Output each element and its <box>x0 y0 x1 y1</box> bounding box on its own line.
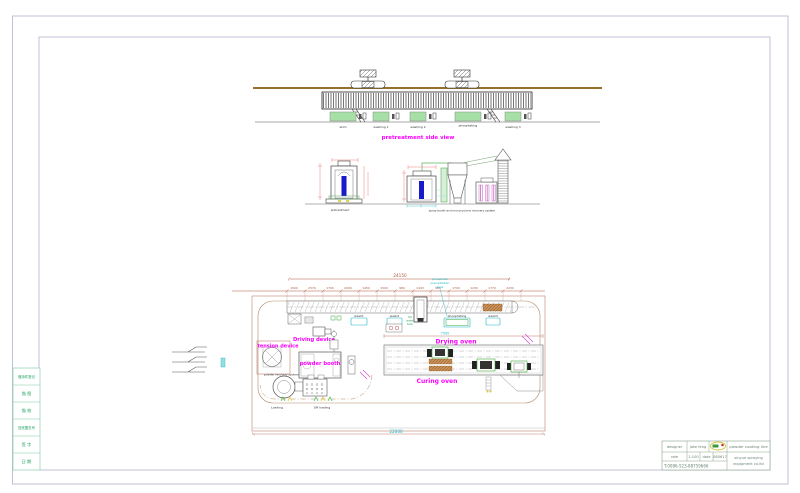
hoist-trolley <box>445 70 479 88</box>
tank-label-washing2: washing 2 <box>410 125 425 129</box>
designer-value: jake feng <box>689 445 707 449</box>
dim-value: 980 <box>399 286 405 290</box>
scale-label: rate <box>671 455 679 459</box>
note-line: hot <box>408 315 412 319</box>
hot-water-tank-note: hot water tank <box>406 315 414 326</box>
dim-value: 1500 <box>290 286 298 290</box>
magenta-diagonal-dim <box>360 370 370 379</box>
note-line: water <box>406 319 414 323</box>
cyan-marker <box>221 358 225 367</box>
powder-recovery-system <box>273 375 327 398</box>
drawing-sheet: 借用件登记 描 图 描 校 旧底图总号 签 字 日 期 designer jak… <box>0 0 800 493</box>
plan-tank-label: wash1 <box>354 314 364 318</box>
tank-washing3 <box>505 112 531 121</box>
workpiece-blue-bar <box>419 181 424 199</box>
plan-tank-wash3 <box>486 318 500 325</box>
tank-washing2 <box>410 112 436 121</box>
dim-value: 2000 <box>344 286 352 290</box>
burner-unit <box>507 361 531 378</box>
plan-tank-label: wash3 <box>488 314 498 318</box>
pretreatment-section-caption: pretreatment <box>331 208 351 212</box>
yellow-marker <box>346 200 349 202</box>
tank-label-phosphating: phosphating <box>459 124 478 128</box>
cyclone-cone <box>448 175 467 198</box>
flow-arrow-icon <box>172 357 207 362</box>
left-revision-table: 借用件登记 描 图 描 校 旧底图总号 签 字 日 期 <box>13 368 40 470</box>
plan-spray-chamber <box>414 297 427 322</box>
dim-value: 1443 <box>416 286 424 290</box>
tension-device-label: tension device <box>257 344 299 350</box>
cyclone-barrel <box>448 163 467 175</box>
green-riser-duct <box>441 168 447 202</box>
note-line: tank <box>407 322 413 326</box>
oven-dimension: 7500 <box>441 332 450 336</box>
note-line: tank <box>437 285 444 289</box>
loading-label: Loading <box>271 406 283 410</box>
cyan-dimension-lines <box>407 205 436 208</box>
yellow-marker <box>338 200 341 202</box>
plan-tank-phosphating-inner <box>446 320 468 326</box>
filter-cartridge <box>486 185 490 201</box>
filter-cartridge <box>492 185 496 201</box>
oven-dim-line <box>384 334 543 338</box>
workpiece-blue-bar <box>342 176 347 196</box>
overall-dimension: 24150 <box>393 273 407 278</box>
tan-pass-block <box>483 304 502 311</box>
ladder-brace <box>487 109 500 122</box>
conveyor-chain-band <box>322 92 532 109</box>
cad-drawing-canvas: 借用件登记 描 图 描 校 旧底图总号 签 字 日 期 designer jak… <box>0 0 800 493</box>
pretreatment-side-view: skim washing 1 washing 2 phosphating was… <box>253 70 602 141</box>
plan-tank-wash1 <box>351 318 367 325</box>
company-name-line2: equipment co.ltd <box>733 462 764 466</box>
date-label: date <box>702 455 711 459</box>
revision-row-label: 签 字 <box>22 441 32 447</box>
tank-label-washing3: washing 3 <box>505 125 520 129</box>
plan-tank-label: wash2 <box>390 314 400 318</box>
cyclone-dust-bin <box>454 198 461 203</box>
flow-arrow-icon <box>172 367 207 372</box>
heater-bar-hatch <box>429 366 452 371</box>
hoist-trolley <box>351 70 385 88</box>
exhaust-stack <box>498 160 508 203</box>
oven-exit-extension <box>500 375 543 391</box>
magenta-diagonal-dim <box>522 334 533 344</box>
flow-arrows <box>172 347 225 372</box>
elevation-views: pretreatment spray booth and mon <box>305 149 540 213</box>
curing-oven-label: Curing oven <box>417 378 458 385</box>
title-block: designer jake feng powder coating line r… <box>662 441 770 470</box>
dim-value: 1700 <box>452 286 460 290</box>
tank-skim <box>330 112 366 121</box>
bottom-dimension: 22000 <box>389 429 403 434</box>
cyclone-exhaust-duct <box>462 156 499 166</box>
revision-row-label: 借用件登记 <box>18 374 36 379</box>
dim-value: 2230 <box>506 286 514 290</box>
spray-booth-recovery-section: spray booth and monocyclone recovery sys… <box>402 149 511 213</box>
scale-value: 1:100 <box>688 455 699 459</box>
date-value: 080617 <box>713 455 727 459</box>
tank-label-skim: skim <box>339 125 346 129</box>
section-top-cap <box>338 161 350 166</box>
pretreatment-tanks <box>330 112 531 121</box>
pump-box <box>386 324 402 332</box>
heater-bar-hatch <box>429 359 452 364</box>
revision-row-label: 旧底图总号 <box>18 425 36 430</box>
up-arrow-icon <box>495 149 511 160</box>
dim-value: 2570 <box>308 286 316 290</box>
band-end-equipment <box>288 314 341 324</box>
filter-cartridge <box>479 185 483 201</box>
product-title: powder coating line <box>729 444 768 449</box>
off-loading-label: Off loading <box>314 406 331 410</box>
exit-ladder <box>486 377 492 393</box>
dim-value: 1500 <box>380 286 388 290</box>
company-name-line1: xinyue spraying <box>734 456 763 460</box>
driving-device-label: Driving device <box>293 337 335 343</box>
booth-section-caption: spray booth and monocyclone recovery sys… <box>429 209 496 213</box>
flow-arrow-icon <box>172 347 207 352</box>
tank-phosphating <box>455 112 491 121</box>
outer-border <box>13 16 789 484</box>
revision-row-label: 描 图 <box>22 390 32 397</box>
sheet-frame <box>13 16 789 484</box>
plan-view: 24150 1500 2570 1700 2000 1450 1500 980 … <box>172 273 545 436</box>
dim-value: 1230 <box>470 286 478 290</box>
section-base <box>326 199 362 203</box>
logo-green-mark <box>713 445 719 448</box>
dim-value: 1700 <box>326 286 334 290</box>
phone-number: T:0086-523-88759666 <box>663 464 709 469</box>
plan-tank-label: phosphating <box>448 314 467 318</box>
company-logo <box>711 442 726 450</box>
logo-red-mark <box>721 444 724 447</box>
booth-top-cap <box>413 171 431 176</box>
dim-value: 1450 <box>362 286 370 290</box>
tank-label-washing1: washing 1 <box>373 125 388 129</box>
tank-washing1 <box>373 112 399 121</box>
revision-row-label: 描 校 <box>22 407 33 414</box>
side-view-caption: pretreatment side view <box>382 135 455 141</box>
powder-booth-label: powder booth <box>300 361 341 367</box>
dim-value: 1770 <box>488 286 496 290</box>
filter-top-plenum <box>481 178 493 182</box>
designer-label: designer <box>667 445 683 449</box>
powder-recovery-label: powder recovery system <box>264 373 299 377</box>
drying-oven-label: Drying oven <box>436 339 477 346</box>
